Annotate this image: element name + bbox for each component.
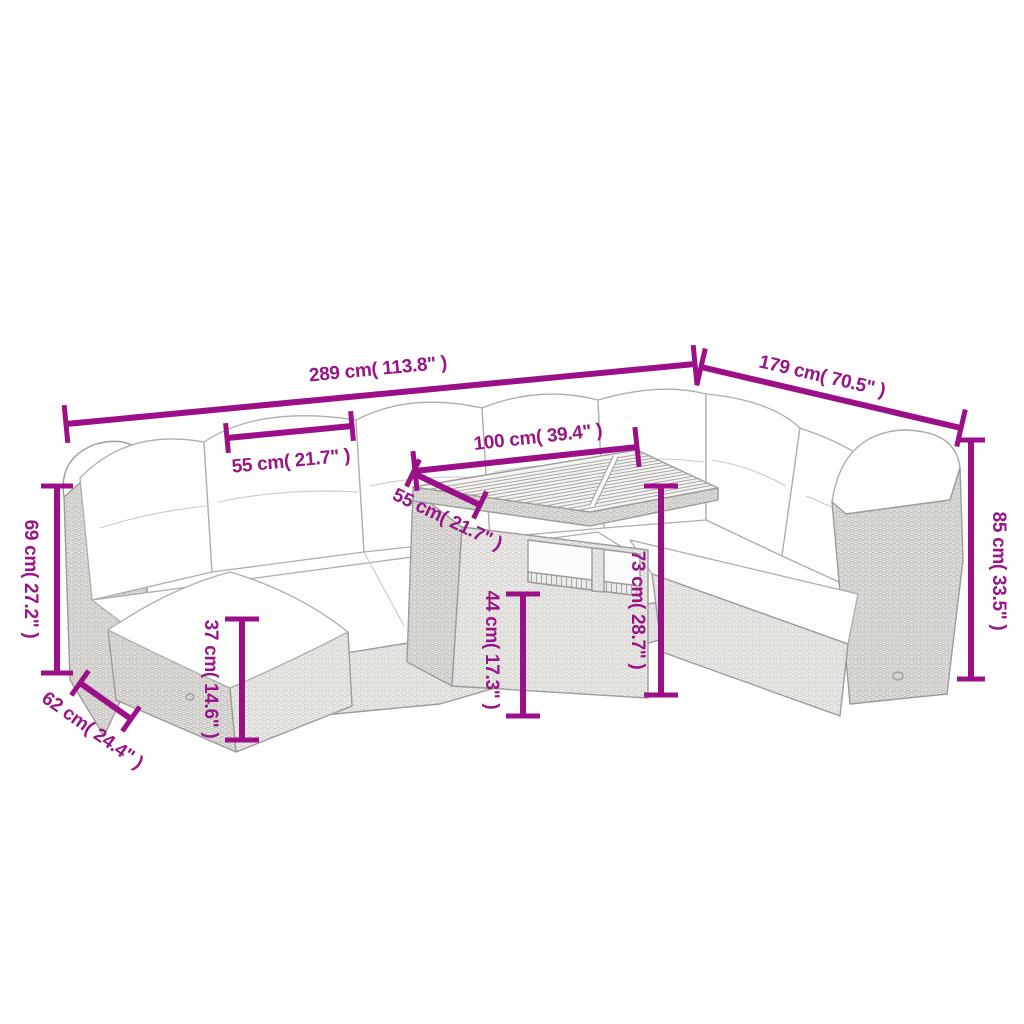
dim-label-armrest-height: 69 cm( 27.2" ) <box>19 520 41 639</box>
dim-label-backrest-height: 85 cm( 33.5" ) <box>987 512 1009 631</box>
furniture-illustration <box>0 0 1024 1024</box>
dim-label-shelf-height: 44 cm( 17.3" ) <box>480 591 502 710</box>
dim-label-table-height: 73 cm( 28.7" ) <box>626 551 648 670</box>
sofa-right-arm <box>832 430 963 704</box>
dim-label-seat-height: 37 cm( 14.6" ) <box>199 620 221 739</box>
dimension-diagram: 289 cm( 113.8" ) 179 cm( 70.5" ) 55 cm( … <box>0 0 1024 1024</box>
